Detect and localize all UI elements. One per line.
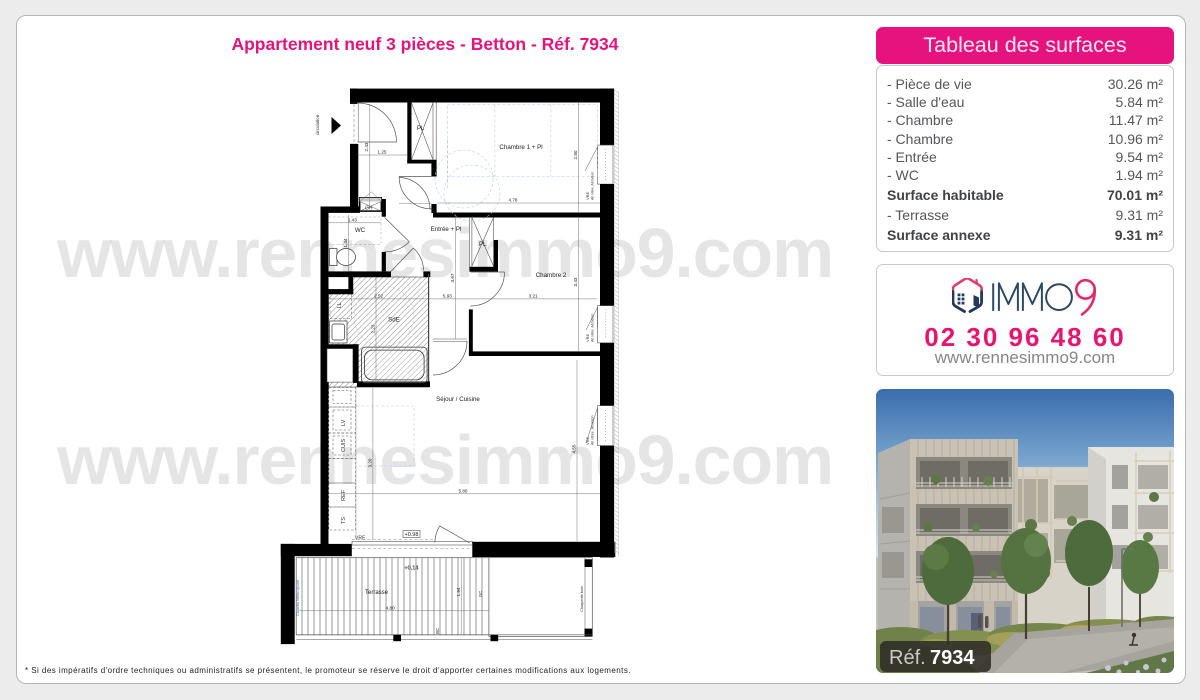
- svg-text:Chambre 2: Chambre 2: [536, 272, 567, 279]
- svg-text:BC: BC: [435, 628, 440, 634]
- svg-text:circulation: circulation: [315, 114, 320, 135]
- svg-text:CUIS: CUIS: [341, 439, 347, 452]
- svg-text:2.52: 2.52: [374, 294, 383, 299]
- svg-text:Charpente bois: Charpente bois: [580, 586, 584, 612]
- svg-text:Séjour / Cuisine: Séjour / Cuisine: [436, 396, 480, 403]
- svg-text:3.67: 3.67: [450, 273, 455, 282]
- svg-text:4.80: 4.80: [386, 606, 395, 611]
- svg-text:2.23: 2.23: [370, 324, 375, 333]
- svg-text:SdE: SdE: [388, 317, 400, 324]
- svg-text:WC: WC: [355, 227, 366, 234]
- svg-text:+0.14: +0.14: [405, 566, 419, 572]
- svg-text:4.78: 4.78: [509, 198, 518, 203]
- svg-text:+0.98: +0.98: [405, 532, 419, 538]
- svg-text:Chambre 1 + Pl: Chambre 1 + Pl: [499, 144, 542, 151]
- svg-text:Réf.: Réf.: [889, 647, 926, 669]
- svg-text:7934: 7934: [930, 647, 975, 669]
- svg-text:3.21: 3.21: [529, 294, 538, 299]
- svg-text:All vitée. All.béton: All vitée. All.béton: [591, 314, 595, 342]
- svg-text:Terrasse: Terrasse: [365, 590, 389, 596]
- svg-text:PL: PL: [417, 126, 425, 132]
- svg-text:1.43: 1.43: [348, 218, 357, 223]
- svg-text:GC: GC: [478, 591, 483, 597]
- svg-text:2.80: 2.80: [573, 150, 578, 159]
- svg-text:VRE: VRE: [585, 436, 590, 445]
- svg-text:VRE: VRE: [355, 536, 366, 542]
- svg-text:LV: LV: [341, 419, 347, 426]
- svg-text:REF: REF: [341, 489, 347, 501]
- svg-text:VRE: VRE: [585, 333, 590, 342]
- svg-text:5.80: 5.80: [459, 488, 468, 493]
- svg-text:1.94: 1.94: [456, 587, 461, 596]
- svg-text:VRE: VRE: [585, 191, 590, 200]
- svg-text:4.55: 4.55: [571, 444, 576, 453]
- svg-text:Entrée + Pl: Entrée + Pl: [431, 226, 462, 233]
- svg-text:3.20: 3.20: [367, 458, 372, 467]
- svg-text:All vitée. All.béton: All vitée. All.béton: [591, 172, 595, 200]
- svg-text:All vitrée. All.béton: All vitrée. All.béton: [591, 415, 595, 445]
- svg-text:TS: TS: [341, 517, 347, 524]
- svg-text:GH: GH: [365, 206, 373, 212]
- svg-text:LL: LL: [337, 302, 343, 308]
- svg-text:1.25: 1.25: [378, 150, 387, 155]
- svg-text:5.93: 5.93: [443, 294, 452, 299]
- svg-text:1.44: 1.44: [343, 238, 348, 247]
- svg-text:PL: PL: [479, 242, 487, 248]
- svg-text:2.43: 2.43: [364, 142, 369, 151]
- svg-text:3.43: 3.43: [573, 277, 578, 286]
